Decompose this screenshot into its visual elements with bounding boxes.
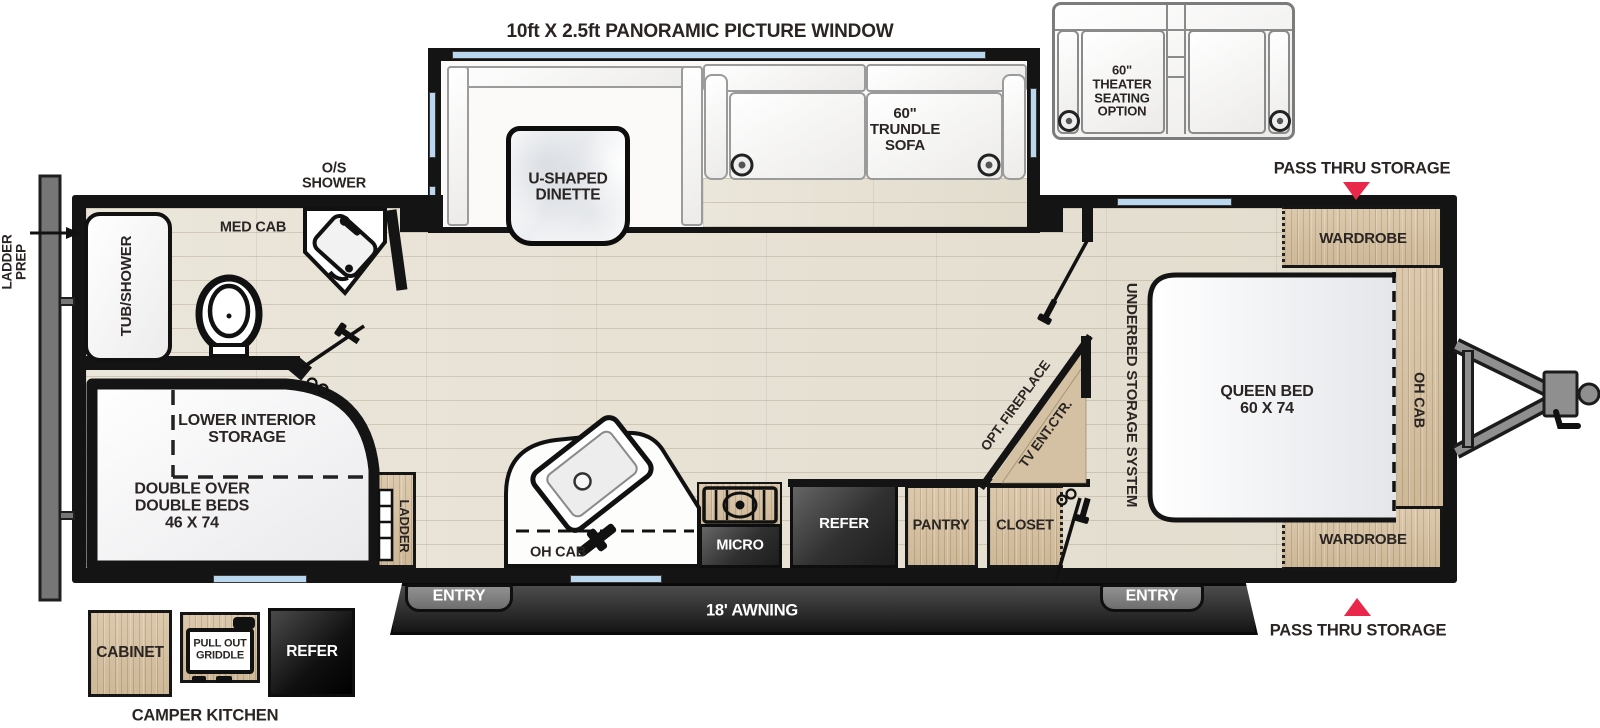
griddle-foot-left — [192, 676, 206, 683]
hitch-icon — [1456, 345, 1599, 452]
camper-griddle — [186, 628, 254, 674]
sofa-armrest-left — [704, 74, 728, 180]
ladder-prep-label: LADDER PREP — [1, 234, 30, 289]
dinette-table — [506, 126, 630, 246]
theater-armrest-left — [1057, 30, 1079, 134]
os-shower-label: O/S SHOWER — [302, 162, 366, 193]
camper-refer — [268, 608, 355, 697]
wardrobe-bottom — [1282, 506, 1443, 570]
griddle-knob — [233, 617, 255, 629]
microwave — [699, 524, 782, 568]
bunk-window-bottom — [213, 575, 307, 583]
panoramic-window-label: 10ft X 2.5ft PANORAMIC PICTURE WINDOW — [506, 22, 893, 42]
pass-thru-top-label: PASS THRU STORAGE — [1274, 160, 1451, 177]
slide-junction-left — [400, 195, 443, 232]
theater-console-tray — [1168, 56, 1184, 78]
kitchen-window-bottom — [570, 575, 662, 583]
camper-cabinet — [88, 610, 172, 697]
bedroom-ohcab — [1396, 268, 1443, 506]
refrigerator — [790, 482, 898, 568]
dinette-bench-back — [447, 66, 703, 88]
pass-thru-bottom-label: PASS THRU STORAGE — [1270, 622, 1447, 639]
shower-fixture — [327, 209, 365, 222]
bumper — [40, 176, 74, 600]
griddle-foot-right — [216, 676, 232, 683]
kitchen-ohcab-strip — [508, 531, 697, 566]
slideout-window-left-a — [429, 92, 436, 158]
sofa-armrest-right — [1002, 74, 1026, 180]
pass-thru-arrow-bottom — [1344, 598, 1371, 616]
tub-shower — [84, 212, 172, 362]
pantry — [905, 485, 978, 568]
dinette-bench-right — [681, 66, 703, 226]
closet — [987, 485, 1063, 568]
camper-kitchen-title: CAMPER KITCHEN — [132, 707, 279, 724]
slideout-window-right — [1030, 88, 1037, 158]
floorplan-canvas: 10ft X 2.5ft PANORAMIC PICTURE WINDOW U-… — [0, 0, 1600, 728]
theater-seat-left — [1081, 30, 1165, 134]
sofa-seat-left — [729, 92, 866, 180]
slide-junction-right — [1027, 195, 1063, 232]
sofa-seat-right — [866, 92, 1003, 180]
entry-door-left — [405, 584, 513, 612]
theater-armrest-right — [1268, 30, 1290, 134]
wardrobe-top — [1282, 206, 1443, 268]
bunk-ladder-strip — [372, 472, 416, 568]
cooktop-counter — [697, 482, 782, 528]
dinette-bench-left — [447, 66, 469, 226]
entry-door-right — [1100, 584, 1204, 612]
bedroom-window-top — [1117, 198, 1232, 206]
theater-seat-right — [1188, 30, 1266, 134]
panoramic-window — [452, 51, 986, 59]
slideout-floor — [703, 178, 1027, 227]
